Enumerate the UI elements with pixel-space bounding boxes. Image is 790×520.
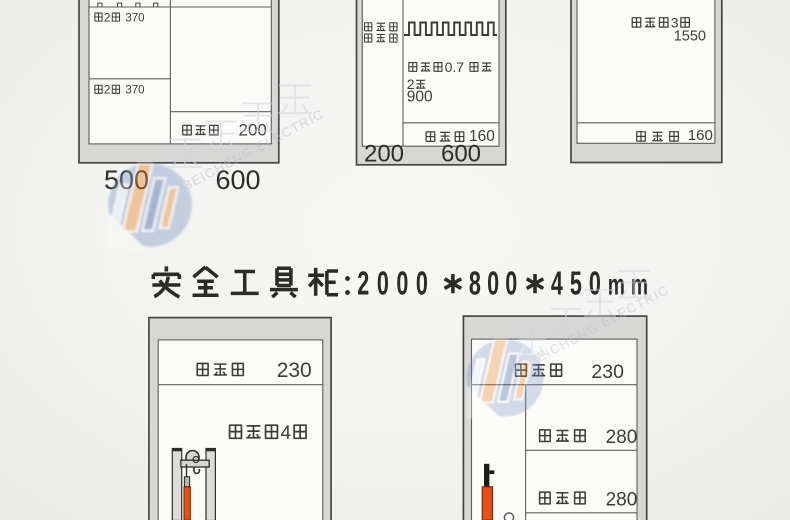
svg-text:600: 600 bbox=[441, 141, 481, 168]
svg-text:370: 370 bbox=[125, 85, 144, 97]
svg-text:280: 280 bbox=[606, 427, 638, 448]
svg-text:1550: 1550 bbox=[674, 29, 706, 45]
svg-text:800: 800 bbox=[469, 264, 524, 302]
svg-text:370: 370 bbox=[125, 13, 144, 25]
svg-text:230: 230 bbox=[591, 361, 624, 383]
svg-text:230: 230 bbox=[277, 359, 312, 382]
svg-text:2000: 2000 bbox=[357, 264, 435, 302]
svg-text:280: 280 bbox=[606, 490, 638, 511]
svg-text:200: 200 bbox=[364, 141, 404, 168]
svg-text:160: 160 bbox=[688, 127, 713, 144]
svg-text:4: 4 bbox=[281, 423, 292, 444]
svg-text:2: 2 bbox=[104, 13, 110, 25]
svg-text:0.7: 0.7 bbox=[445, 59, 465, 75]
svg-text:900: 900 bbox=[407, 89, 433, 106]
svg-text:2: 2 bbox=[104, 85, 110, 97]
